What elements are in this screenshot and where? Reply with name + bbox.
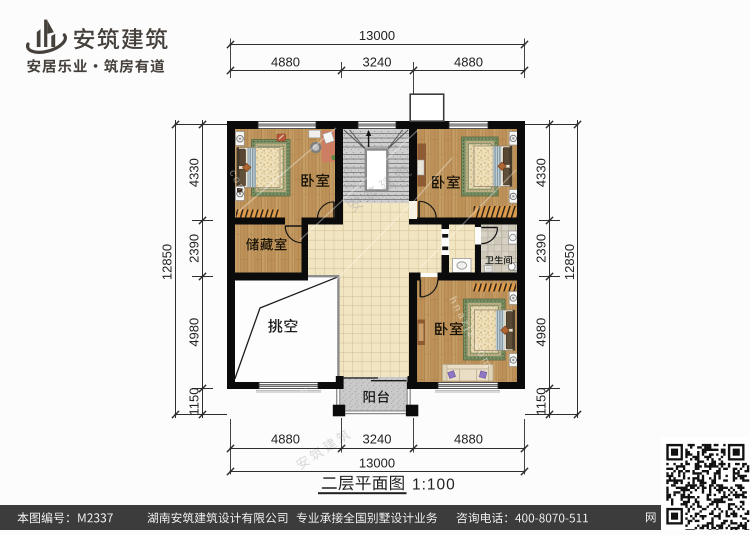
svg-text:4980: 4980 [534, 318, 549, 347]
svg-text:2390: 2390 [534, 234, 549, 263]
svg-text:1150: 1150 [187, 388, 202, 416]
svg-text:4880: 4880 [271, 54, 300, 69]
svg-text:3240: 3240 [363, 54, 392, 69]
svg-text:2390: 2390 [187, 234, 202, 263]
svg-text:13000: 13000 [359, 28, 395, 43]
svg-text:13000: 13000 [359, 456, 395, 471]
svg-text:12850: 12850 [160, 244, 175, 280]
svg-text:4330: 4330 [534, 158, 549, 187]
svg-text:1150: 1150 [534, 388, 549, 416]
svg-text:4880: 4880 [271, 432, 300, 447]
svg-text:4880: 4880 [454, 54, 483, 69]
svg-text:4980: 4980 [187, 318, 202, 347]
svg-text:4880: 4880 [454, 432, 483, 447]
svg-text:12850: 12850 [562, 244, 577, 280]
svg-text:1:100: 1:100 [412, 477, 456, 494]
svg-text:3240: 3240 [363, 432, 392, 447]
svg-text:4330: 4330 [187, 158, 202, 187]
